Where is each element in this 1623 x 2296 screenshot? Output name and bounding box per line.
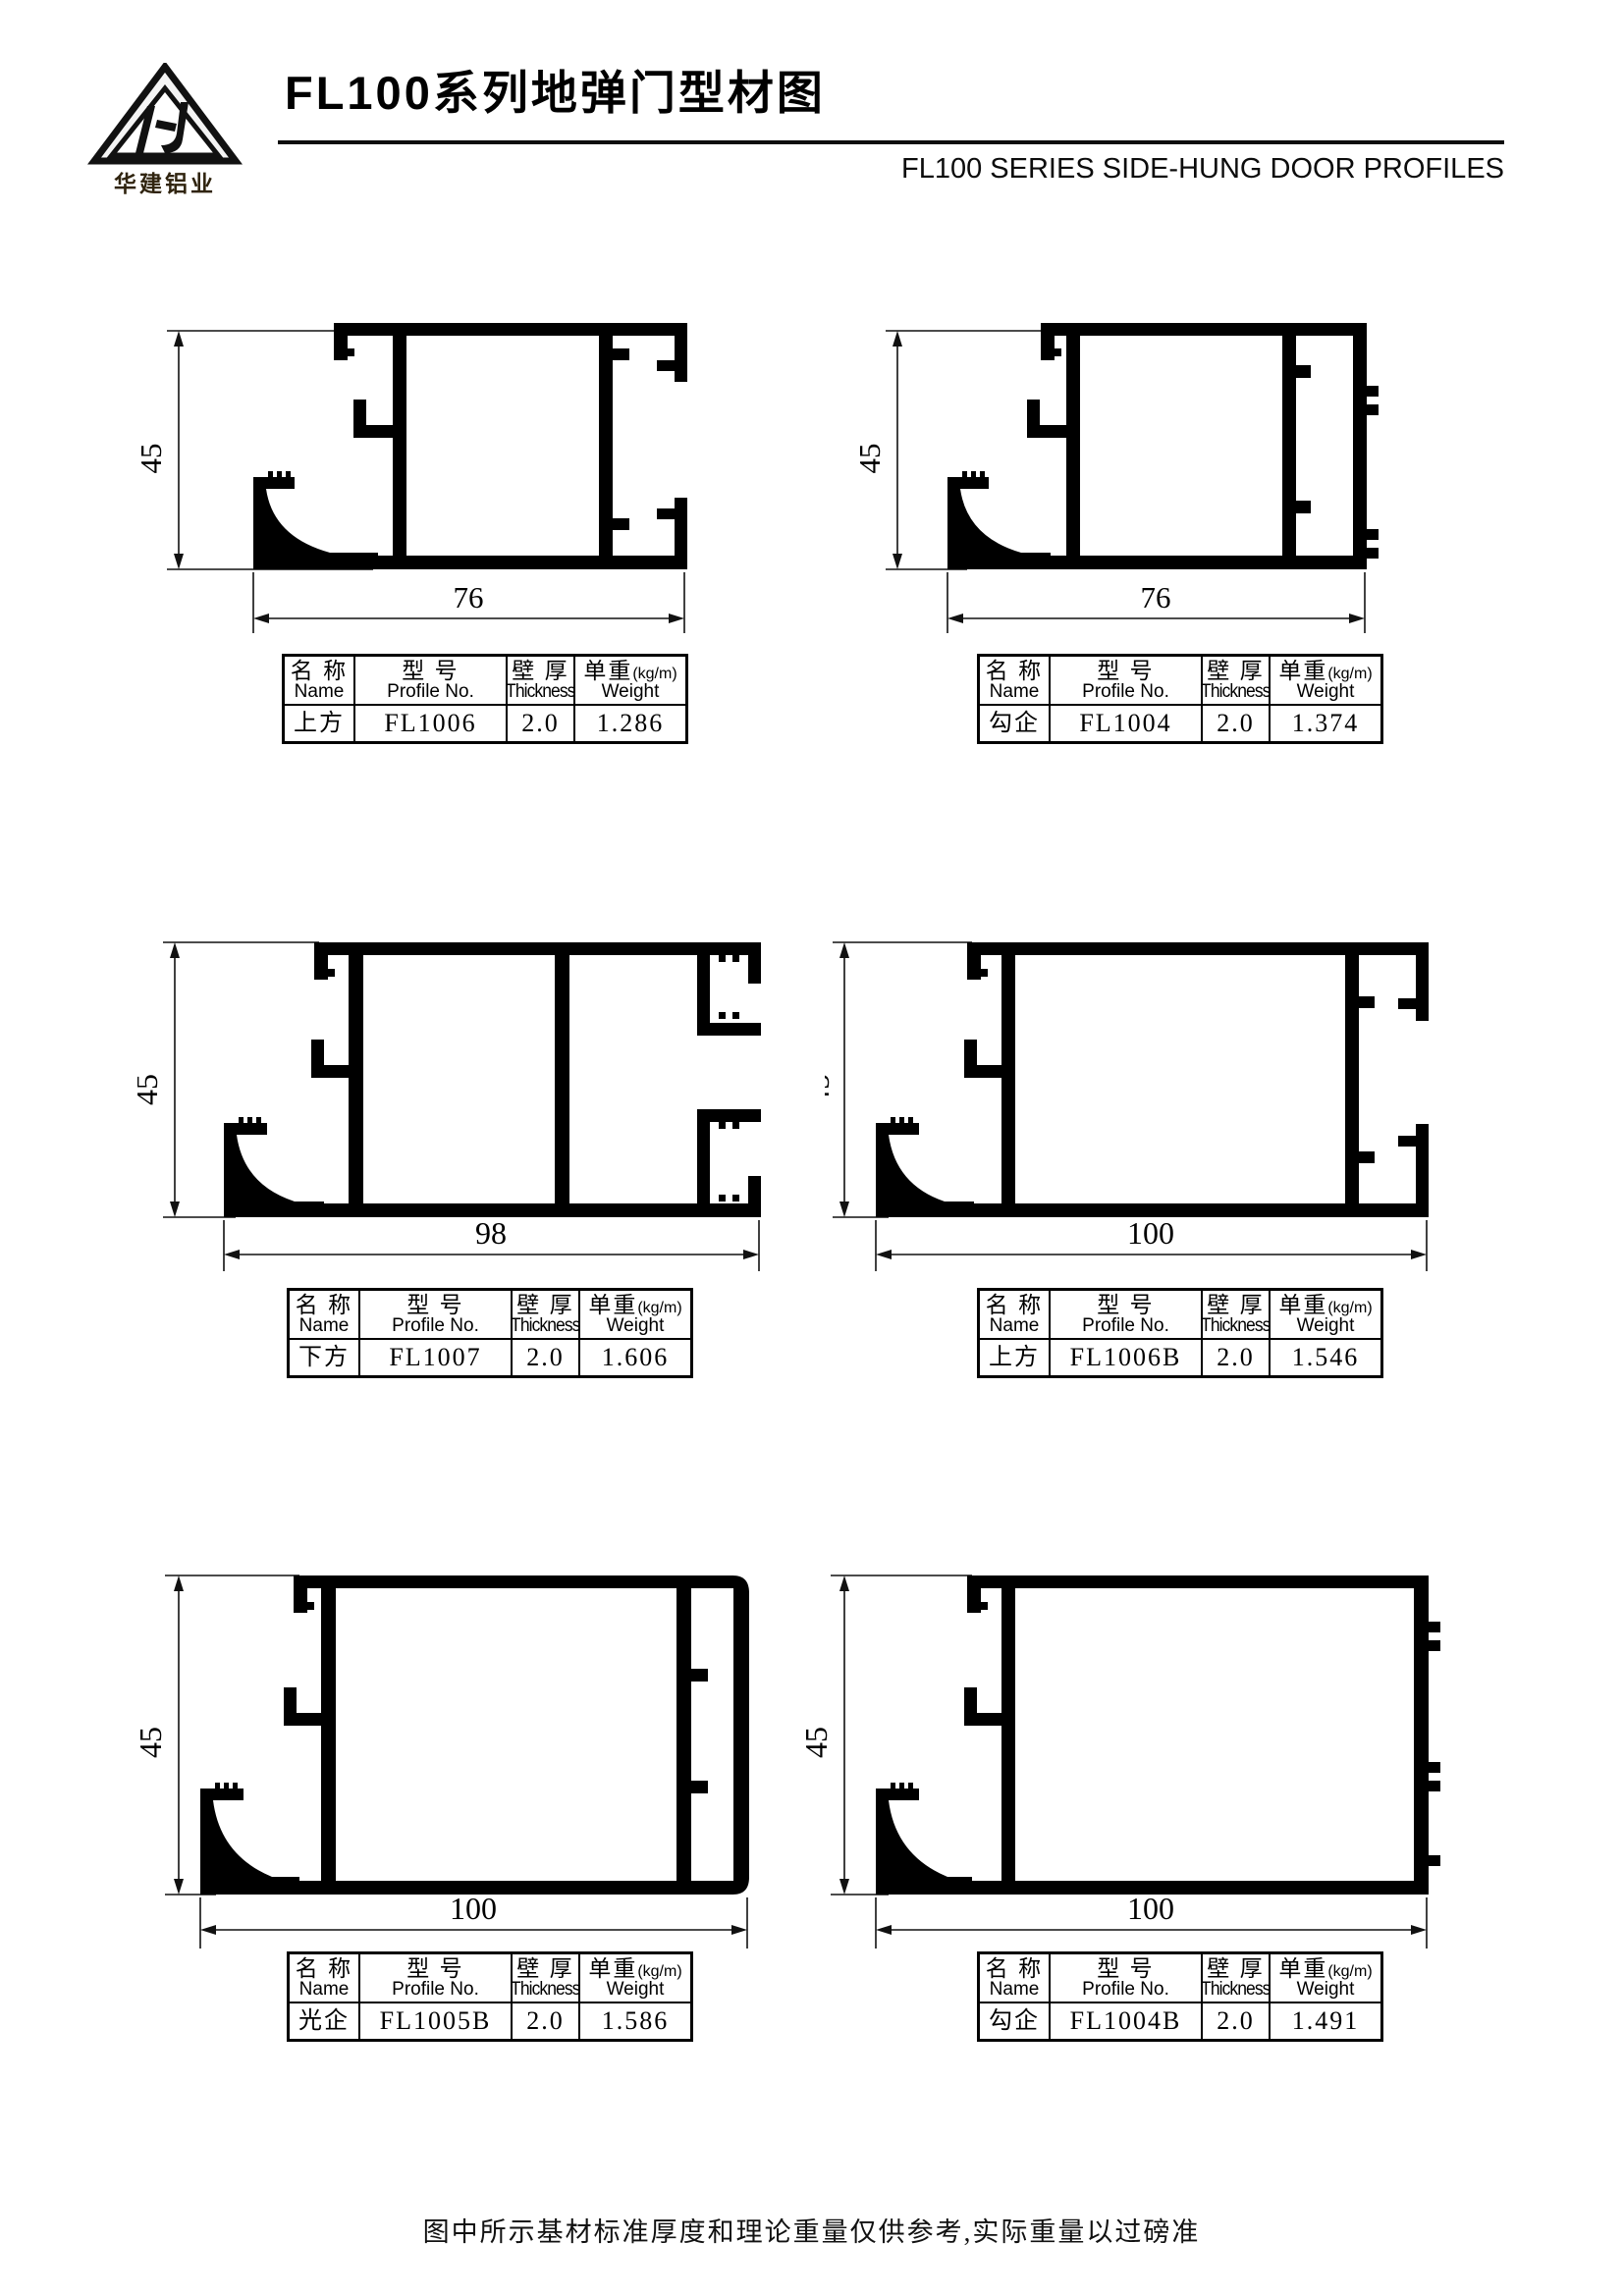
- width-dim-label: 100: [1127, 1891, 1174, 1926]
- table-header-weight: 单重(kg/m)Weight: [1271, 657, 1380, 706]
- height-dim-label: 45: [805, 1727, 834, 1758]
- width-dim-label: 98: [475, 1215, 507, 1251]
- profile-cross-section: [253, 323, 687, 569]
- spec-table-fl1006: 名 称Name 型 号Profile No. 壁 厚Thickness 单重(k…: [282, 654, 688, 744]
- spec-table-fl1004: 名 称Name 型 号Profile No. 壁 厚Thickness 单重(k…: [977, 654, 1383, 744]
- cell-thickness: 2.0: [1203, 706, 1271, 741]
- cell-name: 上方: [285, 706, 355, 741]
- cell-thickness: 2.0: [508, 706, 575, 741]
- profile-drawing-fl1005b: 45 100: [137, 1561, 785, 1998]
- profile-cross-section: [200, 1575, 749, 1895]
- spec-table-fl1004b: 名 称Name 型 号Profile No. 壁 厚Thickness 单重(k…: [977, 1951, 1383, 2042]
- table-header-model: 型 号Profile No.: [355, 657, 508, 706]
- table-header-thickness: 壁 厚Thickness: [1203, 657, 1271, 706]
- cell-profile-no: FL1007: [360, 1340, 513, 1375]
- catalog-page: 华建铝业 FL100系列地弹门型材图 FL100 SERIES SIDE-HUN…: [0, 0, 1623, 2296]
- profile-cross-section: [947, 323, 1379, 569]
- cell-profile-no: FL1006B: [1051, 1340, 1203, 1375]
- table-header-model: 型 号Profile No.: [1051, 1954, 1203, 2003]
- height-dim-label: 45: [137, 1727, 168, 1758]
- profile-cross-section: [224, 942, 761, 1217]
- width-dim-label: 76: [454, 580, 484, 614]
- width-dim-label: 100: [1127, 1215, 1174, 1251]
- table-header-weight: 单重(kg/m)Weight: [1271, 1954, 1380, 2003]
- cell-profile-no: FL1005B: [360, 2003, 513, 2039]
- page-subtitle-en: FL100 SERIES SIDE-HUNG DOOR PROFILES: [278, 153, 1504, 186]
- cell-weight: 1.586: [580, 2003, 690, 2039]
- table-header-name: 名 称Name: [980, 657, 1051, 706]
- table-header-weight: 单重(kg/m)Weight: [580, 1954, 690, 2003]
- table-header-thickness: 壁 厚Thickness: [508, 657, 575, 706]
- spec-table-fl1006b: 名 称Name 型 号Profile No. 壁 厚Thickness 单重(k…: [977, 1288, 1383, 1378]
- cell-weight: 1.374: [1271, 706, 1380, 741]
- table-header-name: 名 称Name: [290, 1954, 360, 2003]
- company-logo: [86, 63, 243, 170]
- page-title: FL100系列地弹门型材图: [285, 55, 826, 123]
- cell-thickness: 2.0: [1203, 2003, 1271, 2039]
- spec-table-fl1007: 名 称Name 型 号Profile No. 壁 厚Thickness 单重(k…: [287, 1288, 693, 1378]
- profile-drawing-fl1004: 45 76: [839, 309, 1409, 648]
- table-header-weight: 单重(kg/m)Weight: [1271, 1291, 1380, 1340]
- height-dim-label: 45: [825, 1074, 836, 1105]
- cell-thickness: 2.0: [513, 1340, 580, 1375]
- cell-weight: 1.491: [1271, 2003, 1380, 2039]
- cell-name: 勾企: [980, 706, 1051, 741]
- footer-note: 图中所示基材标准厚度和理论重量仅供参考,实际重量以过磅准: [0, 2211, 1623, 2249]
- triangle-hj-logo-icon: [86, 63, 243, 165]
- cell-name: 光企: [290, 2003, 360, 2039]
- width-dim-label: 100: [450, 1891, 497, 1926]
- table-header-thickness: 壁 厚Thickness: [513, 1291, 580, 1340]
- company-name: 华建铝业: [79, 165, 251, 198]
- table-header-thickness: 壁 厚Thickness: [1203, 1954, 1271, 2003]
- table-header-weight: 单重(kg/m)Weight: [575, 657, 685, 706]
- profile-drawing-fl1004b: 45 100: [805, 1561, 1473, 1998]
- cell-name: 勾企: [980, 2003, 1051, 2039]
- cell-weight: 1.606: [580, 1340, 690, 1375]
- table-header-name: 名 称Name: [290, 1291, 360, 1340]
- cell-name: 下方: [290, 1340, 360, 1375]
- cell-thickness: 2.0: [1203, 1340, 1271, 1375]
- cell-thickness: 2.0: [513, 2003, 580, 2039]
- profile-cross-section: [876, 1575, 1440, 1895]
- table-header-name: 名 称Name: [980, 1954, 1051, 2003]
- cell-profile-no: FL1004: [1051, 706, 1203, 741]
- height-dim-label: 45: [137, 1074, 164, 1105]
- table-header-model: 型 号Profile No.: [360, 1954, 513, 2003]
- table-header-model: 型 号Profile No.: [360, 1291, 513, 1340]
- table-header-weight: 单重(kg/m)Weight: [580, 1291, 690, 1340]
- spec-table-fl1005b: 名 称Name 型 号Profile No. 壁 厚Thickness 单重(k…: [287, 1951, 693, 2042]
- table-header-name: 名 称Name: [980, 1291, 1051, 1340]
- table-header-model: 型 号Profile No.: [1051, 1291, 1203, 1340]
- title-underline: [278, 140, 1504, 144]
- table-header-name: 名 称Name: [285, 657, 355, 706]
- profile-drawing-fl1006: 45 76: [137, 309, 707, 648]
- table-header-thickness: 壁 厚Thickness: [513, 1954, 580, 2003]
- cell-profile-no: FL1006: [355, 706, 508, 741]
- profile-cross-section: [876, 942, 1429, 1217]
- cell-name: 上方: [980, 1340, 1051, 1375]
- table-header-model: 型 号Profile No.: [1051, 657, 1203, 706]
- table-header-thickness: 壁 厚Thickness: [1203, 1291, 1271, 1340]
- height-dim-label: 45: [852, 444, 887, 474]
- cell-profile-no: FL1004B: [1051, 2003, 1203, 2039]
- cell-weight: 1.546: [1271, 1340, 1380, 1375]
- cell-weight: 1.286: [575, 706, 685, 741]
- width-dim-label: 76: [1141, 580, 1171, 614]
- height-dim-label: 45: [137, 444, 168, 474]
